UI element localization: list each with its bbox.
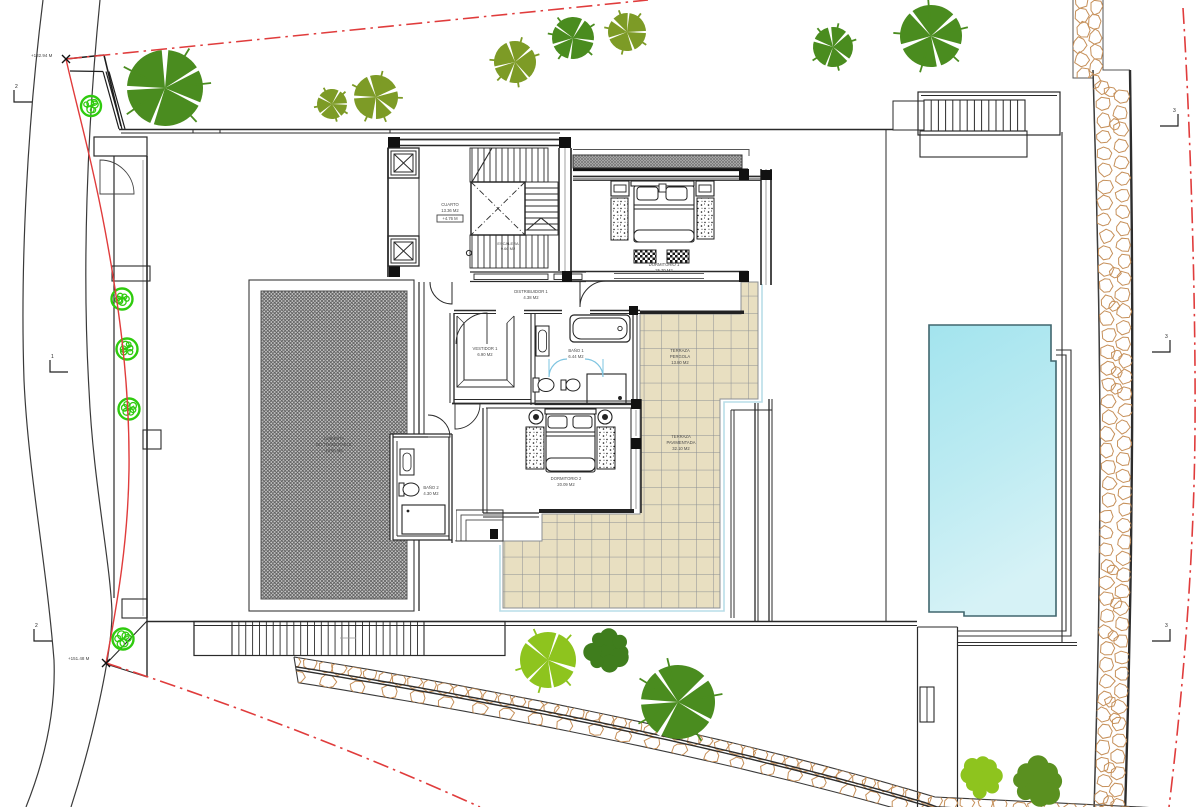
svg-text:DORMITORIO 2: DORMITORIO 2 <box>551 476 582 481</box>
svg-text:+151.48 M: +151.48 M <box>68 656 90 661</box>
svg-text:1: 1 <box>51 354 54 360</box>
svg-text:32.10 M2: 32.10 M2 <box>672 446 690 451</box>
svg-text:9.66 M2: 9.66 M2 <box>501 246 516 251</box>
svg-text:25.70 M2: 25.70 M2 <box>655 268 673 273</box>
svg-text:13.80 M2: 13.80 M2 <box>671 360 689 365</box>
svg-text:CUARTO: CUARTO <box>441 202 459 207</box>
svg-text:CUBIERTA: CUBIERTA <box>324 436 345 441</box>
svg-text:TERRAZA: TERRAZA <box>670 348 690 353</box>
svg-text:3: 3 <box>1173 108 1176 114</box>
svg-text:PERGOLA: PERGOLA <box>670 354 690 359</box>
svg-text:BAÑO 1: BAÑO 1 <box>568 348 584 353</box>
svg-text:+132.94 M: +132.94 M <box>31 53 53 58</box>
svg-text:DORMITORIO 1: DORMITORIO 1 <box>649 262 680 267</box>
svg-text:NO TRANSITABLE: NO TRANSITABLE <box>316 442 352 447</box>
svg-text:2: 2 <box>15 84 18 90</box>
svg-text:13.36 M2: 13.36 M2 <box>441 208 459 213</box>
svg-text:4.30 M2: 4.30 M2 <box>423 491 439 496</box>
svg-text:2: 2 <box>35 623 38 629</box>
svg-text:PAVIMENTADA: PAVIMENTADA <box>666 440 695 445</box>
svg-text:20.09 M2: 20.09 M2 <box>557 482 575 487</box>
svg-text:6.44 M2: 6.44 M2 <box>568 354 584 359</box>
svg-text:43.60 M2: 43.60 M2 <box>325 448 343 453</box>
svg-text:6.90 M2: 6.90 M2 <box>477 352 493 357</box>
svg-text:3: 3 <box>1165 623 1168 629</box>
svg-text:VESTIDOR 1: VESTIDOR 1 <box>473 346 499 351</box>
svg-text:DISTRIBUIDOR 1: DISTRIBUIDOR 1 <box>514 289 548 294</box>
svg-text:3: 3 <box>1165 334 1168 340</box>
svg-text:+4.76 M: +4.76 M <box>442 216 458 221</box>
svg-text:TERRAZA: TERRAZA <box>671 434 691 439</box>
svg-text:4.38 M2: 4.38 M2 <box>523 295 539 300</box>
svg-text:BAÑO 2: BAÑO 2 <box>423 485 439 490</box>
